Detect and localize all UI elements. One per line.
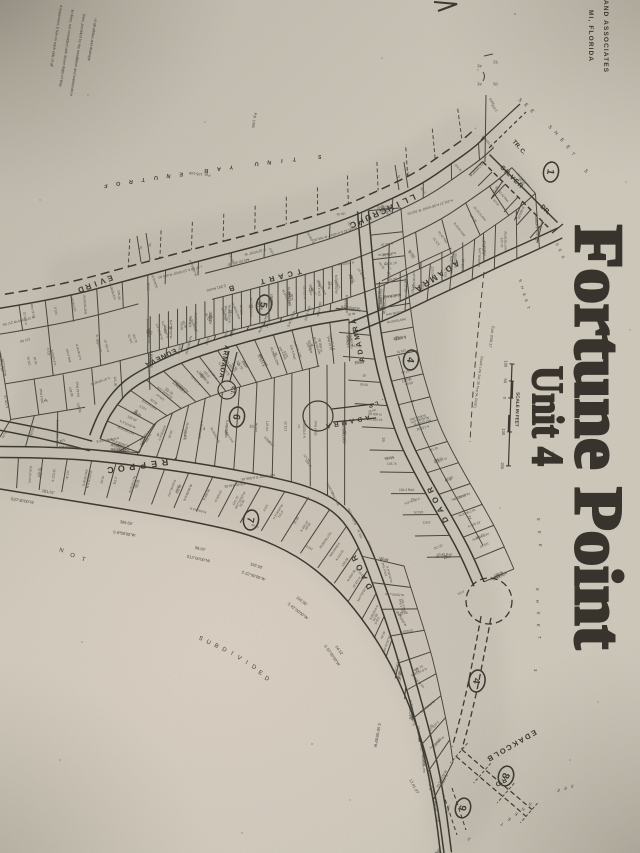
svg-text:200: 200 (500, 462, 505, 470)
svg-text:AND ASSOCIATES: AND ASSOCIATES (602, 0, 609, 73)
svg-text:A: A (217, 165, 222, 171)
svg-text:126.06: 126.06 (117, 290, 121, 300)
svg-text:115.5': 115.5' (422, 520, 431, 524)
svg-text:B: B (204, 167, 209, 173)
svg-text:MI, FLORIDA: MI, FLORIDA (587, 10, 594, 62)
svg-text:18: 18 (248, 304, 253, 309)
svg-text:126.06: 126.06 (254, 422, 258, 432)
svg-text:125.75': 125.75' (434, 802, 438, 812)
svg-text:O: O (117, 463, 125, 474)
svg-text:N40°00'00"E: N40°00'00"E (449, 256, 453, 274)
svg-text:126.06: 126.06 (336, 212, 346, 217)
svg-text:N40°00'00"E: N40°00'00"E (55, 420, 59, 438)
svg-text:104.4 Rad.: 104.4 Rad. (379, 288, 383, 304)
svg-text:100: 100 (503, 360, 508, 368)
svg-text:103.75: 103.75 (387, 462, 397, 466)
svg-text:121.30: 121.30 (113, 376, 118, 386)
svg-text:65.00: 65.00 (436, 814, 440, 822)
svg-text:125.75': 125.75' (500, 238, 504, 249)
svg-text:55.00: 55.00 (360, 382, 368, 387)
svg-text:121.30: 121.30 (284, 421, 288, 431)
svg-text:11: 11 (343, 430, 348, 435)
svg-text:13: 13 (268, 298, 273, 303)
svg-text:N: N (166, 172, 171, 178)
svg-text:21: 21 (443, 555, 448, 560)
svg-text:N: N (267, 158, 272, 164)
svg-text:24: 24 (168, 325, 173, 330)
svg-text:55.00: 55.00 (146, 282, 150, 290)
svg-text:U: U (254, 160, 259, 166)
svg-text:N43°00'00"W: N43°00'00"W (342, 425, 346, 444)
svg-text:103.75: 103.75 (412, 716, 416, 726)
svg-text:N 8°00'00"E: N 8°00'00"E (59, 445, 75, 450)
svg-text:126.06: 126.06 (239, 304, 243, 314)
svg-text:125.04': 125.04' (265, 421, 269, 432)
svg-text:R: R (129, 178, 134, 184)
svg-text:H: H (535, 599, 540, 603)
svg-text:63.42 Rad.: 63.42 Rad. (483, 241, 487, 257)
svg-text:104.4 Rad.: 104.4 Rad. (146, 318, 150, 334)
svg-text:Unit 4: Unit 4 (523, 366, 572, 466)
svg-text:100: 100 (501, 428, 506, 436)
svg-text:104.4 Rad.: 104.4 Rad. (399, 488, 415, 492)
svg-text:N43°00'00"W: N43°00'00"W (412, 271, 416, 290)
svg-text:U: U (154, 174, 159, 180)
svg-text:104.4 Rad.: 104.4 Rad. (314, 420, 318, 436)
svg-text:103.75: 103.75 (413, 510, 423, 514)
svg-text:A-123.32: A-123.32 (303, 286, 307, 299)
svg-text:125.04': 125.04' (430, 266, 434, 277)
